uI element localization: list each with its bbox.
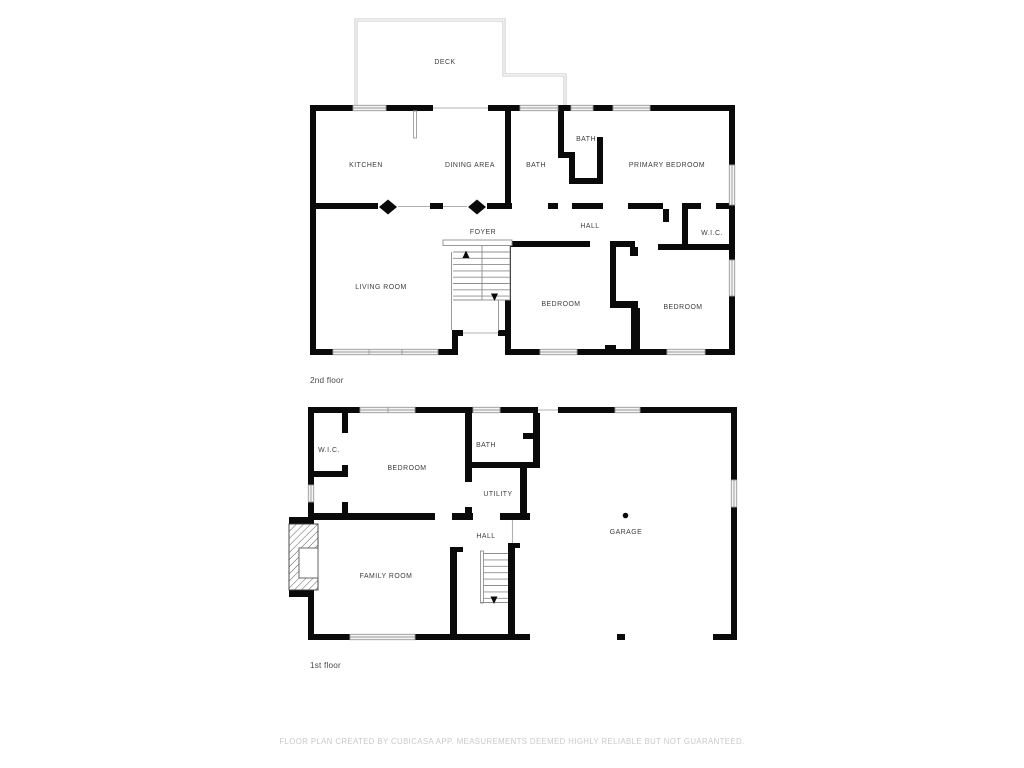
window <box>571 105 593 110</box>
deck-outline <box>356 20 565 105</box>
window <box>615 407 640 412</box>
floor-plan-canvas: DECK KITCHEN DINING AREA BATH BATH PRIMA… <box>0 0 1024 768</box>
window <box>729 165 734 205</box>
window <box>729 260 734 296</box>
stair-treads <box>484 554 509 599</box>
room-label-primary-bedroom: PRIMARY BEDROOM <box>629 162 705 169</box>
window <box>667 349 705 354</box>
room-label-hall-upper: HALL <box>580 223 599 230</box>
window <box>308 485 313 502</box>
floor1-label: 1st floor <box>310 661 341 670</box>
room-label-foyer: FOYER <box>470 229 496 236</box>
room-label-bath-hall: BATH <box>526 162 546 169</box>
floor2-room-labels: DECK KITCHEN DINING AREA BATH BATH PRIMA… <box>349 59 723 311</box>
room-label-bedroom-a: BEDROOM <box>541 301 580 308</box>
door-diamond <box>379 200 397 215</box>
room-label-bedroom-b: BEDROOM <box>663 304 702 311</box>
room-label-garage: GARAGE <box>610 529 642 536</box>
room-label-kitchen: KITCHEN <box>349 162 383 169</box>
window <box>520 105 558 110</box>
window <box>350 634 415 639</box>
staircase-lower <box>481 551 509 604</box>
room-label-bedroom-lower: BEDROOM <box>387 465 426 472</box>
door-diamond <box>468 200 486 215</box>
fireplace <box>289 517 318 597</box>
window <box>540 349 577 354</box>
floor2-exterior-walls <box>310 105 735 355</box>
kitchen-counter-divider <box>414 111 417 138</box>
window <box>473 407 500 412</box>
window <box>613 105 650 110</box>
window <box>353 105 386 110</box>
room-label-wic-upper: W.I.C. <box>701 230 723 237</box>
footer-disclaimer: FLOOR PLAN CREATED BY CUBICASA APP. MEAS… <box>279 737 744 746</box>
room-label-wic-lower: W.I.C. <box>318 447 340 454</box>
floor1-exterior-walls <box>308 407 737 640</box>
floor2-windows <box>333 105 735 354</box>
window <box>731 480 736 507</box>
firebox <box>299 548 318 578</box>
room-label-living-room: LIVING ROOM <box>355 284 406 291</box>
room-label-utility: UTILITY <box>483 491 512 498</box>
window <box>333 349 438 354</box>
room-label-deck: DECK <box>434 59 455 66</box>
floor-plan-page: DECK KITCHEN DINING AREA BATH BATH PRIMA… <box>0 0 1024 768</box>
garage-post-dot <box>623 513 629 519</box>
floor1-windows <box>308 407 736 639</box>
floor2-label: 2nd floor <box>310 376 344 385</box>
staircase-upper <box>443 240 512 331</box>
room-label-dining-area: DINING AREA <box>445 162 495 169</box>
floor1-interior-walls <box>308 413 540 634</box>
window <box>360 407 415 412</box>
floor2-interior-walls <box>310 111 733 355</box>
room-label-hall-lower: HALL <box>476 533 495 540</box>
room-label-family-room: FAMILY ROOM <box>360 573 413 580</box>
room-label-bath-lower: BATH <box>476 442 496 449</box>
floor2-plan: DECK KITCHEN DINING AREA BATH BATH PRIMA… <box>310 20 735 385</box>
room-label-bath-ensuite: BATH <box>576 136 596 143</box>
floor1-plan: W.I.C. BEDROOM BATH UTILITY HALL GARAGE … <box>289 407 737 670</box>
